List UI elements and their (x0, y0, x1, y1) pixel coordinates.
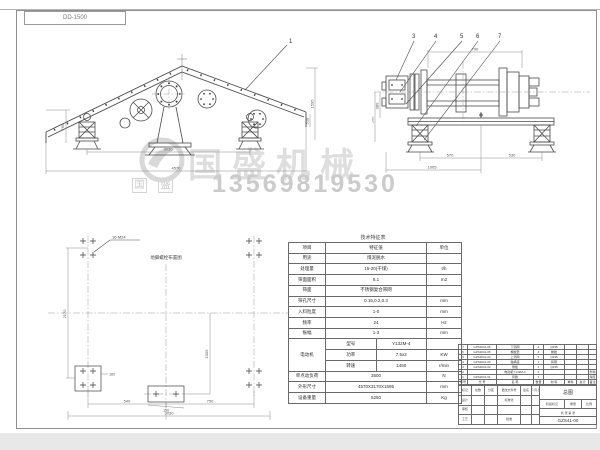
plan-dim-c: 150 (163, 409, 169, 413)
main-dimension-labels: 3030 4570 765 1595 518 (60, 99, 315, 171)
tb-cell: 批准 (498, 415, 521, 424)
table-row: 序号 代 号 名 称 数量 材 料 单件 总计 备注 (459, 380, 597, 385)
table-row: 审核 (459, 406, 539, 416)
exciter-flanges (120, 81, 266, 128)
table-row: 外形尺寸4570X3170X1595mm (289, 382, 462, 393)
spec-item: 转速 (326, 360, 377, 371)
spec-table-title: 技术特征表 (288, 234, 458, 242)
flange-centerlines (152, 77, 186, 111)
main-dimension-lines (46, 68, 318, 174)
spec-value: 1-0 (326, 307, 427, 318)
table-row: 项目 特征值 单位 (289, 243, 462, 254)
dim-overall-label: 4570 (172, 166, 182, 171)
balloon-4: 4 (434, 34, 438, 40)
spec-unit: N (427, 371, 462, 382)
spec-item: 振幅 (289, 328, 326, 339)
spec-unit: Kg (427, 393, 462, 404)
bottom-gray-band (0, 433, 600, 450)
tb-cell (532, 406, 539, 415)
tb-cell: 签名 (521, 386, 532, 395)
balloon-5: 5 (460, 34, 464, 40)
spec-unit (427, 339, 462, 350)
spec-item: 入料粒度 (289, 307, 326, 318)
tb-cell: 比例 (582, 400, 596, 408)
tb-cell (532, 396, 539, 405)
anchor-bolt-clusters (75, 238, 262, 402)
spec-unit (427, 253, 462, 264)
spec-unit: t/h (427, 264, 462, 275)
bom-header: 数量 (534, 380, 544, 385)
spec-item: 频率 (289, 318, 326, 329)
bom-grid: 7 GZS2041-06 下筛网 4 Q235 6GZS2041-05橡胶垫4橡… (458, 344, 597, 385)
balloon-7: 7 (498, 34, 502, 40)
dim-span-label: 3030 (164, 147, 174, 152)
spec-item: 处理量 (289, 264, 326, 275)
shaft-centerlines (374, 62, 590, 122)
spec-unit: mm (427, 382, 462, 393)
dim-l2-label: 500 (372, 116, 375, 123)
table-row: 频率24Hz (289, 318, 462, 329)
title-block: 标记 处数 分区 更改文件号 签名 年.月.日 设计 标准化 审核 (458, 385, 597, 425)
spec-header-item: 项目 (289, 243, 326, 254)
spec-value: 15-20(干煤) (326, 264, 427, 275)
spec-item: 外形尺寸 (289, 382, 326, 393)
spec-motor-label: 电动机 (289, 339, 326, 371)
tb-cell: 阶段标记 (540, 400, 565, 408)
plan-centerlines (48, 236, 288, 420)
dim-b1-label: 570 (447, 153, 454, 158)
tb-cell (521, 396, 532, 405)
tb-cell: 标准化 (498, 396, 521, 405)
foundation-plan-view: 16-M24 地脚螺栓布置图 2170 540 750 3030 1005 18… (48, 228, 288, 424)
table-row: 设备重量5250Kg (289, 393, 462, 404)
end-view: 3 4 5 6 7 (372, 28, 594, 188)
spec-unit (427, 285, 462, 296)
table-row: 筛面面积8.1m2 (289, 275, 462, 286)
plan-dim-b2: 750 (207, 399, 214, 404)
bom-header: 材 料 (544, 380, 565, 385)
main-elevation-view: 3030 4570 765 1595 518 1 (30, 28, 320, 188)
tb-cell: 处数 (472, 386, 485, 395)
plan-leader (94, 240, 140, 252)
spec-item: 功率 (326, 350, 377, 361)
table-row: 筛孔尺寸0.15,0.2,0.3mm (289, 296, 462, 307)
spec-unit: mm (427, 307, 462, 318)
tb-cell (521, 406, 532, 415)
spec-value: 24 (326, 318, 427, 329)
bom-header: 单件 (565, 380, 577, 385)
bom-table: 7 GZS2041-06 下筛网 4 Q235 6GZS2041-05橡胶垫4橡… (458, 344, 597, 385)
dim-top-label: 790 (472, 47, 479, 52)
spec-value: Y132M-4 (376, 339, 427, 350)
spec-value: 5250 (326, 393, 427, 404)
spec-item: 型号 (326, 339, 377, 350)
tb-cell (472, 415, 485, 424)
table-row: 标记 处数 分区 更改文件号 签名 年.月.日 (459, 386, 539, 396)
tb-cell (521, 415, 532, 424)
tb-cell: 分区 (485, 386, 498, 395)
tb-cell (485, 406, 498, 415)
table-row: 处理量15-20(干煤)t/h (289, 264, 462, 275)
deck-bolt-dots (54, 69, 301, 130)
drawing-sheet: DD-1500 国盛机械 13569819530 国 盛 (0, 0, 600, 450)
spec-item: 筛面面积 (289, 275, 326, 286)
spec-value: 3500 (326, 371, 427, 382)
table-row: 振幅1-3mm (289, 328, 462, 339)
spec-table-grid: 项目 特征值 单位 用途煤泥脱水 处理量15-20(干煤)t/h 筛面面积8.1… (288, 242, 462, 404)
plan-dim-cl: 180 (109, 373, 115, 377)
tb-cell: 年.月.日 (532, 386, 539, 395)
bom-header: 备注 (589, 380, 597, 385)
spec-item: 设备重量 (289, 393, 326, 404)
spec-unit: Hz (427, 318, 462, 329)
balloon-3: 3 (412, 34, 416, 40)
spec-unit: KW (427, 350, 462, 361)
spec-value: 4570X3170X1595 (326, 382, 427, 393)
table-row: 入料粒度1-0mm (289, 307, 462, 318)
drawing-number: GZS41-00 (540, 417, 596, 424)
tb-cell (485, 415, 498, 424)
spec-value: 1450 (376, 360, 427, 371)
spec-item: 筛面 (289, 285, 326, 296)
spec-unit: mm (427, 328, 462, 339)
spec-item: 用途 (289, 253, 326, 264)
left-spring-support (73, 114, 101, 150)
spec-value: 8.1 (326, 275, 427, 286)
plan-dim-left: 2170 (62, 309, 67, 319)
spec-table: 技术特征表 项目 特征值 单位 用途煤泥脱水 处理量15-20(干煤)t/h 筛… (288, 234, 458, 404)
title-block-name-area: 总图 阶段标记 重量 比例 共 张 第 张 GZS41-00 (540, 386, 596, 424)
balloon-1: 1 (289, 39, 293, 45)
tb-cell: 重量 (565, 400, 582, 408)
tb-cell (532, 415, 539, 424)
dim-right2-label: 518 (305, 117, 310, 124)
spec-unit: m2 (427, 275, 462, 286)
bom-header: 名 称 (497, 380, 534, 385)
table-row: 用途煤泥脱水 (289, 253, 462, 264)
end-view-balloons: 3 4 5 6 7 (412, 34, 502, 40)
table-row: 工艺 批准 (459, 415, 539, 424)
sheet-code-box: DD-1500 (24, 11, 126, 25)
spec-header-value: 特征值 (326, 243, 427, 254)
dim-l1-label: 380 (375, 102, 380, 109)
tb-cell: 标记 (459, 386, 472, 395)
spec-item: 单点动负荷 (289, 371, 326, 382)
tb-cell (472, 396, 485, 405)
tb-cell (485, 396, 498, 405)
balloon-6: 6 (476, 34, 480, 40)
dim-left-label: 765 (60, 123, 65, 130)
plan-title: 地脚螺栓布置图 (150, 254, 182, 261)
drawing-title: 总图 (540, 386, 596, 400)
spec-value: 煤泥脱水 (326, 253, 427, 264)
dim-b2-label: 530 (509, 153, 516, 158)
table-row: 电动机 型号 Y132M-4 (289, 339, 462, 350)
dim-right-label: 1595 (310, 99, 315, 109)
plan-dim-b1: 540 (124, 399, 131, 404)
table-row: 单点动负荷3500N (289, 371, 462, 382)
table-row: 阶段标记 重量 比例 (540, 400, 596, 409)
balloon-1-leader (245, 45, 287, 90)
right-spring-support (236, 114, 264, 150)
spec-value: 0.15,0.2,0.3 (326, 296, 427, 307)
table-row: 筛面不锈钢复合筛网 (289, 285, 462, 296)
bom-header: 总计 (577, 380, 589, 385)
dim-b3-label: 1005 (428, 165, 438, 170)
spec-unit: r/min (427, 360, 462, 371)
plan-dimension-labels: 2170 540 750 3030 1005 180 150 (62, 309, 214, 416)
tb-cell: 审核 (459, 406, 472, 415)
spec-value: 不锈钢复合筛网 (326, 285, 427, 296)
tb-cell: 工艺 (459, 415, 472, 424)
sheet-count-label: 共 张 第 张 (540, 409, 596, 417)
anchor-bolt-note: 16-M24 (112, 235, 126, 240)
end-dimension-lines (375, 50, 542, 173)
base-beam (408, 112, 554, 125)
spec-item: 筛孔尺寸 (289, 296, 326, 307)
plan-dim-inner: 1005 (204, 349, 209, 359)
tb-cell: 设计 (459, 396, 472, 405)
plan-dimension-lines (66, 248, 270, 420)
bom-header: 序号 (459, 380, 468, 385)
spec-header-unit: 单位 (427, 243, 462, 254)
title-block-revision-grid: 标记 处数 分区 更改文件号 签名 年.月.日 设计 标准化 审核 (459, 386, 540, 424)
table-row: 设计 标准化 (459, 396, 539, 406)
spec-value: 1-3 (326, 328, 427, 339)
bom-header: 代 号 (468, 380, 497, 385)
tb-cell (498, 406, 521, 415)
spec-value: 7.5x2 (376, 350, 427, 361)
spec-unit: mm (427, 296, 462, 307)
tb-cell (472, 406, 485, 415)
tb-cell: 更改文件号 (498, 386, 521, 395)
